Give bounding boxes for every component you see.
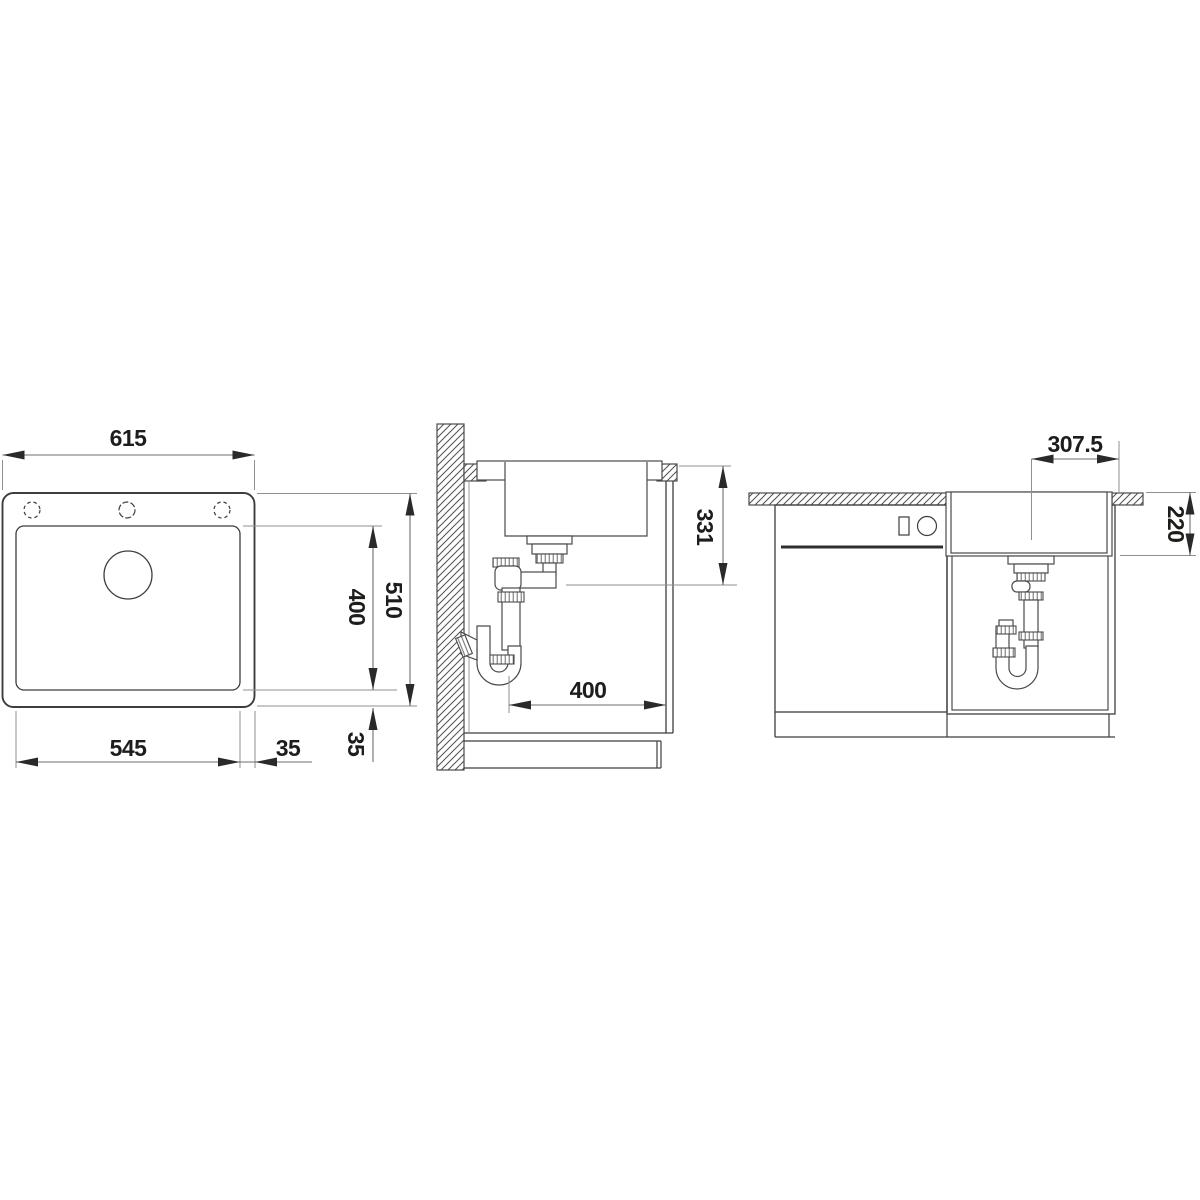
waste-elbow bbox=[1012, 581, 1030, 592]
pipe-coupling bbox=[498, 592, 524, 602]
trap-nut bbox=[996, 626, 1016, 634]
wall-section bbox=[437, 424, 464, 770]
sink-bowl-front-inner bbox=[951, 492, 1107, 553]
technical-drawing-svg: 615 545 35 510 400 35 bbox=[0, 0, 1200, 1200]
strainer-flange bbox=[1008, 556, 1054, 564]
dim-offset-right-label: 35 bbox=[276, 735, 301, 761]
dim-overall-depth-label: 510 bbox=[381, 582, 407, 619]
pipe-coupling bbox=[1019, 592, 1043, 600]
strainer-body bbox=[532, 544, 567, 554]
trap-nut bbox=[993, 648, 1015, 657]
strainer-nut bbox=[536, 554, 563, 563]
dim-offset-bottom-label: 35 bbox=[343, 732, 369, 757]
dim-clearance-label: 400 bbox=[570, 677, 607, 703]
countertop-front-right bbox=[1112, 493, 1143, 505]
technical-drawing-canvas: 615 545 35 510 400 35 bbox=[0, 0, 1200, 1200]
waste-pipe-vertical bbox=[1024, 600, 1038, 648]
dim-drain-height-label: 331 bbox=[692, 509, 718, 547]
dim-overall-width-label: 615 bbox=[110, 425, 148, 451]
dim-bowl-depth-label: 220 bbox=[1163, 506, 1189, 543]
countertop-front-left bbox=[749, 493, 947, 505]
strainer-nut bbox=[1017, 573, 1045, 581]
strainer-flange bbox=[527, 536, 572, 544]
strainer-body bbox=[1014, 564, 1048, 573]
trap-nut bbox=[490, 655, 514, 664]
pipe-coupling bbox=[1019, 632, 1043, 640]
dim-center-offset-label: 307.5 bbox=[1047, 431, 1103, 457]
dim-cutout-depth-label: 400 bbox=[344, 589, 370, 626]
sink-bowl-section bbox=[505, 462, 647, 536]
dim-cutout-width-label: 545 bbox=[110, 735, 148, 761]
waste-elbow bbox=[495, 566, 521, 590]
